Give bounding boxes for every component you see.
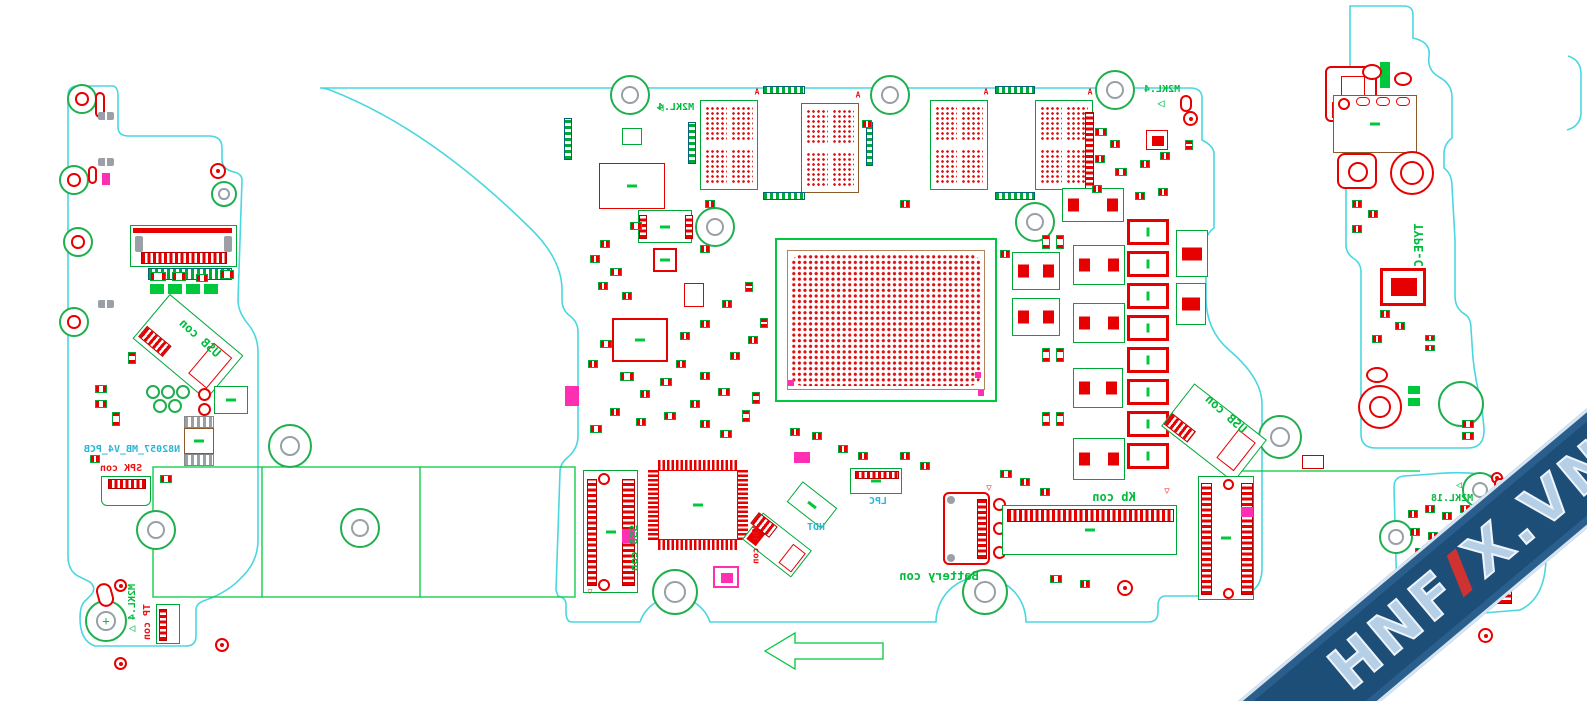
label-spk-con: SPK con: [100, 464, 142, 474]
label-m2kl4: M2KL.4: [1144, 85, 1180, 95]
connector-pins: [141, 252, 227, 264]
chip-component: [812, 432, 822, 440]
chip-component: [1092, 185, 1102, 193]
label-m2kl4: M2KL.4: [128, 584, 138, 620]
chip-component: [1352, 200, 1362, 208]
connector-pins: [108, 479, 146, 489]
chip-component: [690, 400, 700, 408]
chip-component: [168, 284, 182, 294]
chip-component: [1042, 412, 1050, 426]
chip-component: [128, 352, 136, 364]
triangle-marker-icon: ◁: [129, 623, 136, 634]
connector-pins: [1201, 483, 1212, 595]
capacitor-bank: [1176, 230, 1208, 277]
chip-component: [748, 336, 758, 344]
pin-strip: [763, 86, 805, 94]
triangle-marker-icon: ◁: [1157, 97, 1164, 109]
chip-component: [700, 245, 710, 253]
chip-body: [1391, 278, 1417, 296]
cap-circle: [153, 399, 167, 413]
pink-pad: [975, 372, 981, 378]
qfp-chip: [612, 318, 668, 362]
wifi-connector: [1198, 476, 1254, 600]
triangle-marker-icon: ◁: [656, 101, 663, 113]
chip-component: [1302, 455, 1324, 469]
chip-component: [664, 412, 676, 420]
hinge-hole: [63, 227, 93, 257]
chip-component: [610, 408, 620, 416]
chip-component: [705, 200, 715, 208]
chip-component: [196, 274, 208, 282]
connector-boss: [947, 554, 955, 562]
chip-pins: [658, 460, 738, 470]
chip-component: [1408, 510, 1418, 518]
corner-board-outline: [1567, 56, 1581, 130]
pin-strip: [995, 86, 1035, 94]
connector-pins: [1007, 509, 1174, 522]
jack-barrel: [1369, 396, 1391, 418]
hole-ring: [1394, 72, 1412, 86]
datum-marker: A: [856, 91, 861, 100]
chip-component: [1095, 128, 1107, 136]
chip-pins: [648, 470, 658, 540]
chip-component: [1425, 335, 1435, 341]
pin-strip: [995, 192, 1035, 200]
chip-component: [150, 284, 164, 294]
chip-component: [1000, 250, 1010, 258]
chip-component: [1352, 225, 1362, 233]
chip-component: [1056, 235, 1064, 249]
ec-chip: [648, 460, 748, 550]
chip-component: [186, 284, 200, 294]
soic-pins: [184, 454, 214, 466]
capacitor-bank: [1012, 252, 1060, 290]
chip-component: [1050, 575, 1062, 583]
chip-component: [95, 385, 107, 393]
chip-component: [1042, 235, 1050, 249]
cap-circle: [198, 388, 211, 401]
chip-component: [1020, 478, 1030, 486]
hole-ring: [1223, 479, 1234, 490]
chip-component: [90, 455, 100, 463]
chip-component: [684, 283, 704, 307]
chip-component: [1056, 348, 1064, 362]
fiducial-marker: [1117, 580, 1133, 596]
capacitor-bank: [1062, 188, 1124, 222]
chip-component: [172, 272, 186, 281]
chip-component: [590, 425, 602, 433]
hinge-pad: [1180, 95, 1192, 112]
connector-latch: [135, 236, 143, 252]
vrm-stage: [1127, 251, 1169, 277]
chip-component: [160, 475, 172, 483]
connector-bar: [133, 228, 232, 233]
hinge-hole: [59, 307, 89, 337]
connector-latch: [224, 236, 232, 252]
chip-component: [1410, 528, 1420, 536]
vrm-stage: [1127, 315, 1169, 341]
direction-arrow: [765, 633, 883, 669]
chip-component: [1080, 580, 1090, 588]
chip-component: [660, 378, 672, 386]
connector-pins: [855, 471, 899, 479]
audio-jack-ring: [1358, 385, 1402, 429]
chip-component: [700, 420, 710, 428]
label-m2kl18: M2KL.18: [1431, 494, 1473, 504]
triangle-marker-icon: ▽: [986, 485, 991, 494]
mounting-hole: [340, 508, 380, 548]
chip-component: [745, 282, 753, 292]
pin-strip: [763, 192, 805, 200]
chip-component: [700, 320, 710, 328]
connector-body: [1341, 76, 1365, 96]
chip-component: [1380, 310, 1390, 318]
chip-component: [600, 240, 610, 248]
qfn-chip: [638, 210, 692, 243]
chip-component: [1425, 505, 1435, 513]
chip-component: [680, 332, 690, 340]
chip-component: [1462, 432, 1474, 440]
chip-component: [220, 270, 234, 279]
label-ssd-con: SSD con: [629, 525, 640, 571]
datum-marker: A: [755, 88, 760, 97]
chip-component: [1042, 348, 1050, 362]
cap-circle: [168, 399, 182, 413]
cap-circle: [176, 385, 190, 399]
mounting-hole: [136, 510, 176, 550]
chip-component: [1095, 155, 1105, 163]
chip-body: [658, 470, 738, 540]
triangle-marker-icon: ▽: [588, 588, 593, 596]
boardview-canvas: + USB con: [0, 0, 1587, 701]
connector-pins: [159, 609, 167, 641]
chip-component: [720, 430, 732, 438]
chip-component: [1140, 160, 1150, 168]
jack-barrel: [1348, 162, 1368, 182]
chip-component: [1040, 488, 1050, 496]
pink-pad: [565, 386, 579, 406]
chip-component: [1372, 335, 1382, 343]
battery-connector: [943, 492, 990, 565]
pad-pair: [98, 300, 114, 308]
chip-component: [214, 386, 248, 414]
label-battery-con: Battery con: [899, 570, 978, 582]
mounting-hole: [1258, 415, 1302, 459]
vrm-stage: [1127, 219, 1169, 245]
vrm-stage: [1127, 379, 1169, 405]
chip-pins: [658, 540, 738, 550]
datum-marker: A: [1088, 88, 1093, 97]
pin-strip: [866, 122, 873, 166]
capacitor-bank: [1073, 245, 1125, 285]
connector-pad: [1396, 97, 1410, 106]
qfn-chip: [653, 248, 677, 272]
chip-component: [630, 222, 642, 230]
kb-connector: [1002, 505, 1177, 555]
chip-component: [920, 462, 930, 470]
chip-component: [610, 268, 622, 276]
chip-component: [1160, 152, 1170, 160]
connector-boss: [947, 496, 955, 504]
capacitor-bank: [1176, 283, 1206, 325]
connector-pins: [977, 499, 987, 559]
soic-chip: [184, 428, 214, 454]
chip-component: [598, 282, 608, 290]
chip-component: [1462, 420, 1474, 428]
label-pcb-name: N82057_MB_V4_PCB: [84, 445, 180, 455]
connector-pad: [1356, 97, 1370, 106]
chip-component: [1110, 140, 1120, 148]
chip-component: [730, 352, 740, 360]
hinge-pad: [88, 166, 97, 184]
hinge-hole: [59, 165, 89, 195]
ddr-bga: [801, 103, 859, 193]
fiducial-marker: [1183, 111, 1198, 126]
chip-component: [1158, 188, 1168, 196]
pink-pad: [788, 380, 794, 386]
pin-strip: [688, 122, 696, 164]
triangle-marker-icon: ▽: [1164, 488, 1169, 497]
chip-pins: [738, 470, 748, 540]
lpc-connector: [850, 468, 902, 494]
chip-component: [718, 388, 730, 396]
jack-barrel: [1400, 161, 1424, 185]
chip-component: [204, 284, 218, 294]
label-lpc: LPC: [869, 497, 887, 507]
chip-component: [1115, 168, 1127, 176]
shield-outline: [599, 163, 665, 209]
chip-component: [900, 200, 910, 208]
chip-component: [1000, 470, 1012, 478]
mounting-hole: [1379, 520, 1413, 554]
fiducial-marker: [114, 579, 127, 592]
fiducial-marker: [114, 657, 127, 670]
chip-component: [640, 390, 650, 398]
connector-pad: [1376, 97, 1390, 106]
pad-pair: [98, 158, 114, 166]
audio-jack: [1337, 153, 1377, 189]
hole-ring: [1338, 98, 1350, 110]
chip-component: [622, 292, 632, 300]
fiducial-marker: [1478, 628, 1493, 643]
cap-circle: [198, 403, 211, 416]
chip-component: [1380, 62, 1390, 88]
lvds-connector: [130, 225, 237, 267]
chip-component: [858, 452, 868, 460]
chip-component: [622, 128, 642, 145]
capacitor-bank: [1073, 303, 1125, 343]
pink-qfn: [713, 566, 739, 588]
tp-connector: [156, 604, 180, 644]
soic-pins: [184, 416, 214, 428]
chip-component: [95, 400, 107, 408]
chip-body: [721, 573, 733, 583]
vrm-stage: [1127, 347, 1169, 373]
hole-ring: [598, 579, 610, 591]
chip-component: [838, 445, 848, 453]
vrm-stage: [1127, 283, 1169, 309]
chip-component: [752, 392, 760, 404]
chip-component: [1408, 386, 1420, 394]
ddr-bga: [930, 100, 988, 190]
chip-component: [1395, 322, 1405, 330]
chip-component: [1368, 210, 1378, 218]
hole-ring: [598, 473, 610, 485]
label-hdt: HDT: [807, 523, 825, 533]
capacitor-bank: [1012, 298, 1060, 336]
fiducial-marker: [215, 638, 229, 652]
hole-ring: [1223, 588, 1234, 599]
cap-circle: [161, 385, 175, 399]
chip-component: [112, 412, 120, 426]
cpu-ball-grid: [791, 254, 981, 386]
label-kb-con: Kb con: [1092, 491, 1135, 503]
chip-component: [900, 452, 910, 460]
pin-strip: [564, 118, 572, 160]
chip-component: [590, 255, 600, 263]
chip-component: [862, 120, 872, 128]
chip-component: [676, 360, 686, 368]
cpu-bga: [775, 238, 997, 402]
capacitor-bank: [1073, 368, 1123, 408]
chip-component: [588, 360, 598, 368]
pad-pair: [98, 112, 114, 120]
fiducial-marker: [210, 163, 226, 179]
mounting-hole: [1095, 70, 1135, 110]
pink-key: [1241, 507, 1253, 517]
cap-circle: [146, 385, 160, 399]
chip-component: [790, 428, 800, 436]
chip-component: [600, 340, 612, 348]
spk-connector: [101, 476, 151, 506]
audio-jack-ring: [1390, 151, 1434, 195]
vrm-column: [1127, 219, 1169, 481]
keepout-circle: [1438, 381, 1484, 427]
chip-component: [1146, 130, 1168, 150]
chip-component: [700, 372, 710, 380]
hinge-hole: [67, 84, 97, 114]
pink-pad: [978, 390, 984, 396]
typec-controller-chip: [1380, 268, 1426, 306]
chip-component: [722, 300, 732, 308]
label-type-c: TYPE-C: [1413, 223, 1425, 266]
chip-component: [150, 272, 166, 281]
chip-component: [620, 372, 634, 381]
pink-pad: [102, 173, 110, 185]
label-tp-con: TP con: [143, 604, 153, 640]
label-kbl-con: KbL con: [753, 526, 762, 564]
chip-component: [1185, 140, 1193, 150]
chip-component: [1056, 412, 1064, 426]
chip-component: [1135, 192, 1145, 200]
mounting-hole: [610, 75, 650, 115]
mounting-hole: [652, 569, 698, 615]
chip-component: [742, 410, 750, 422]
ddr-bga: [700, 100, 758, 190]
connector-pins: [1241, 483, 1253, 595]
chip-component: [636, 418, 646, 426]
chip-component: [1425, 345, 1435, 351]
chip-component: [1442, 512, 1452, 520]
mounting-hole: [211, 181, 237, 207]
hole-ring: [1362, 64, 1382, 80]
pink-pad: [794, 452, 810, 463]
mounting-hole: [695, 207, 735, 247]
chip-component: [1408, 398, 1420, 406]
mounting-hole: [870, 75, 910, 115]
triangle-marker-icon: ◁: [1456, 481, 1462, 491]
mounting-hole: [268, 424, 312, 468]
vrm-stage: [1127, 443, 1169, 469]
capacitor-bank: [1073, 438, 1125, 480]
datum-marker: A: [984, 88, 989, 97]
card-connector: [1333, 95, 1417, 153]
chip-pins: [685, 215, 693, 239]
chip-component: [760, 318, 768, 328]
hole-ring: [1366, 367, 1388, 383]
connector-pins: [587, 479, 597, 586]
